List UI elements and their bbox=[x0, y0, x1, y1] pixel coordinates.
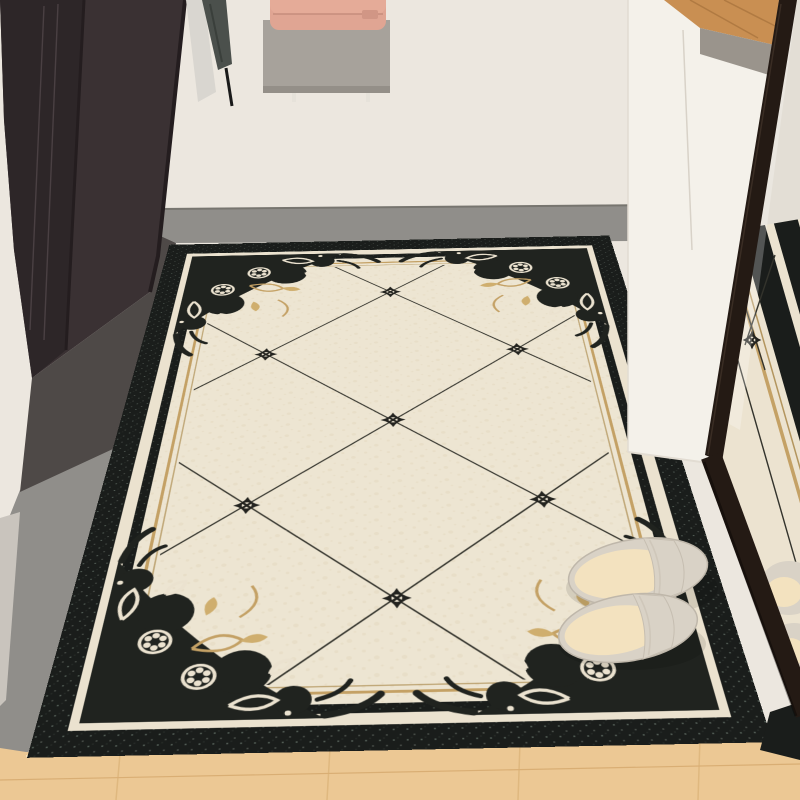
slippers bbox=[554, 530, 718, 672]
entryway-scene bbox=[0, 0, 800, 800]
foreground-scene bbox=[0, 0, 800, 800]
